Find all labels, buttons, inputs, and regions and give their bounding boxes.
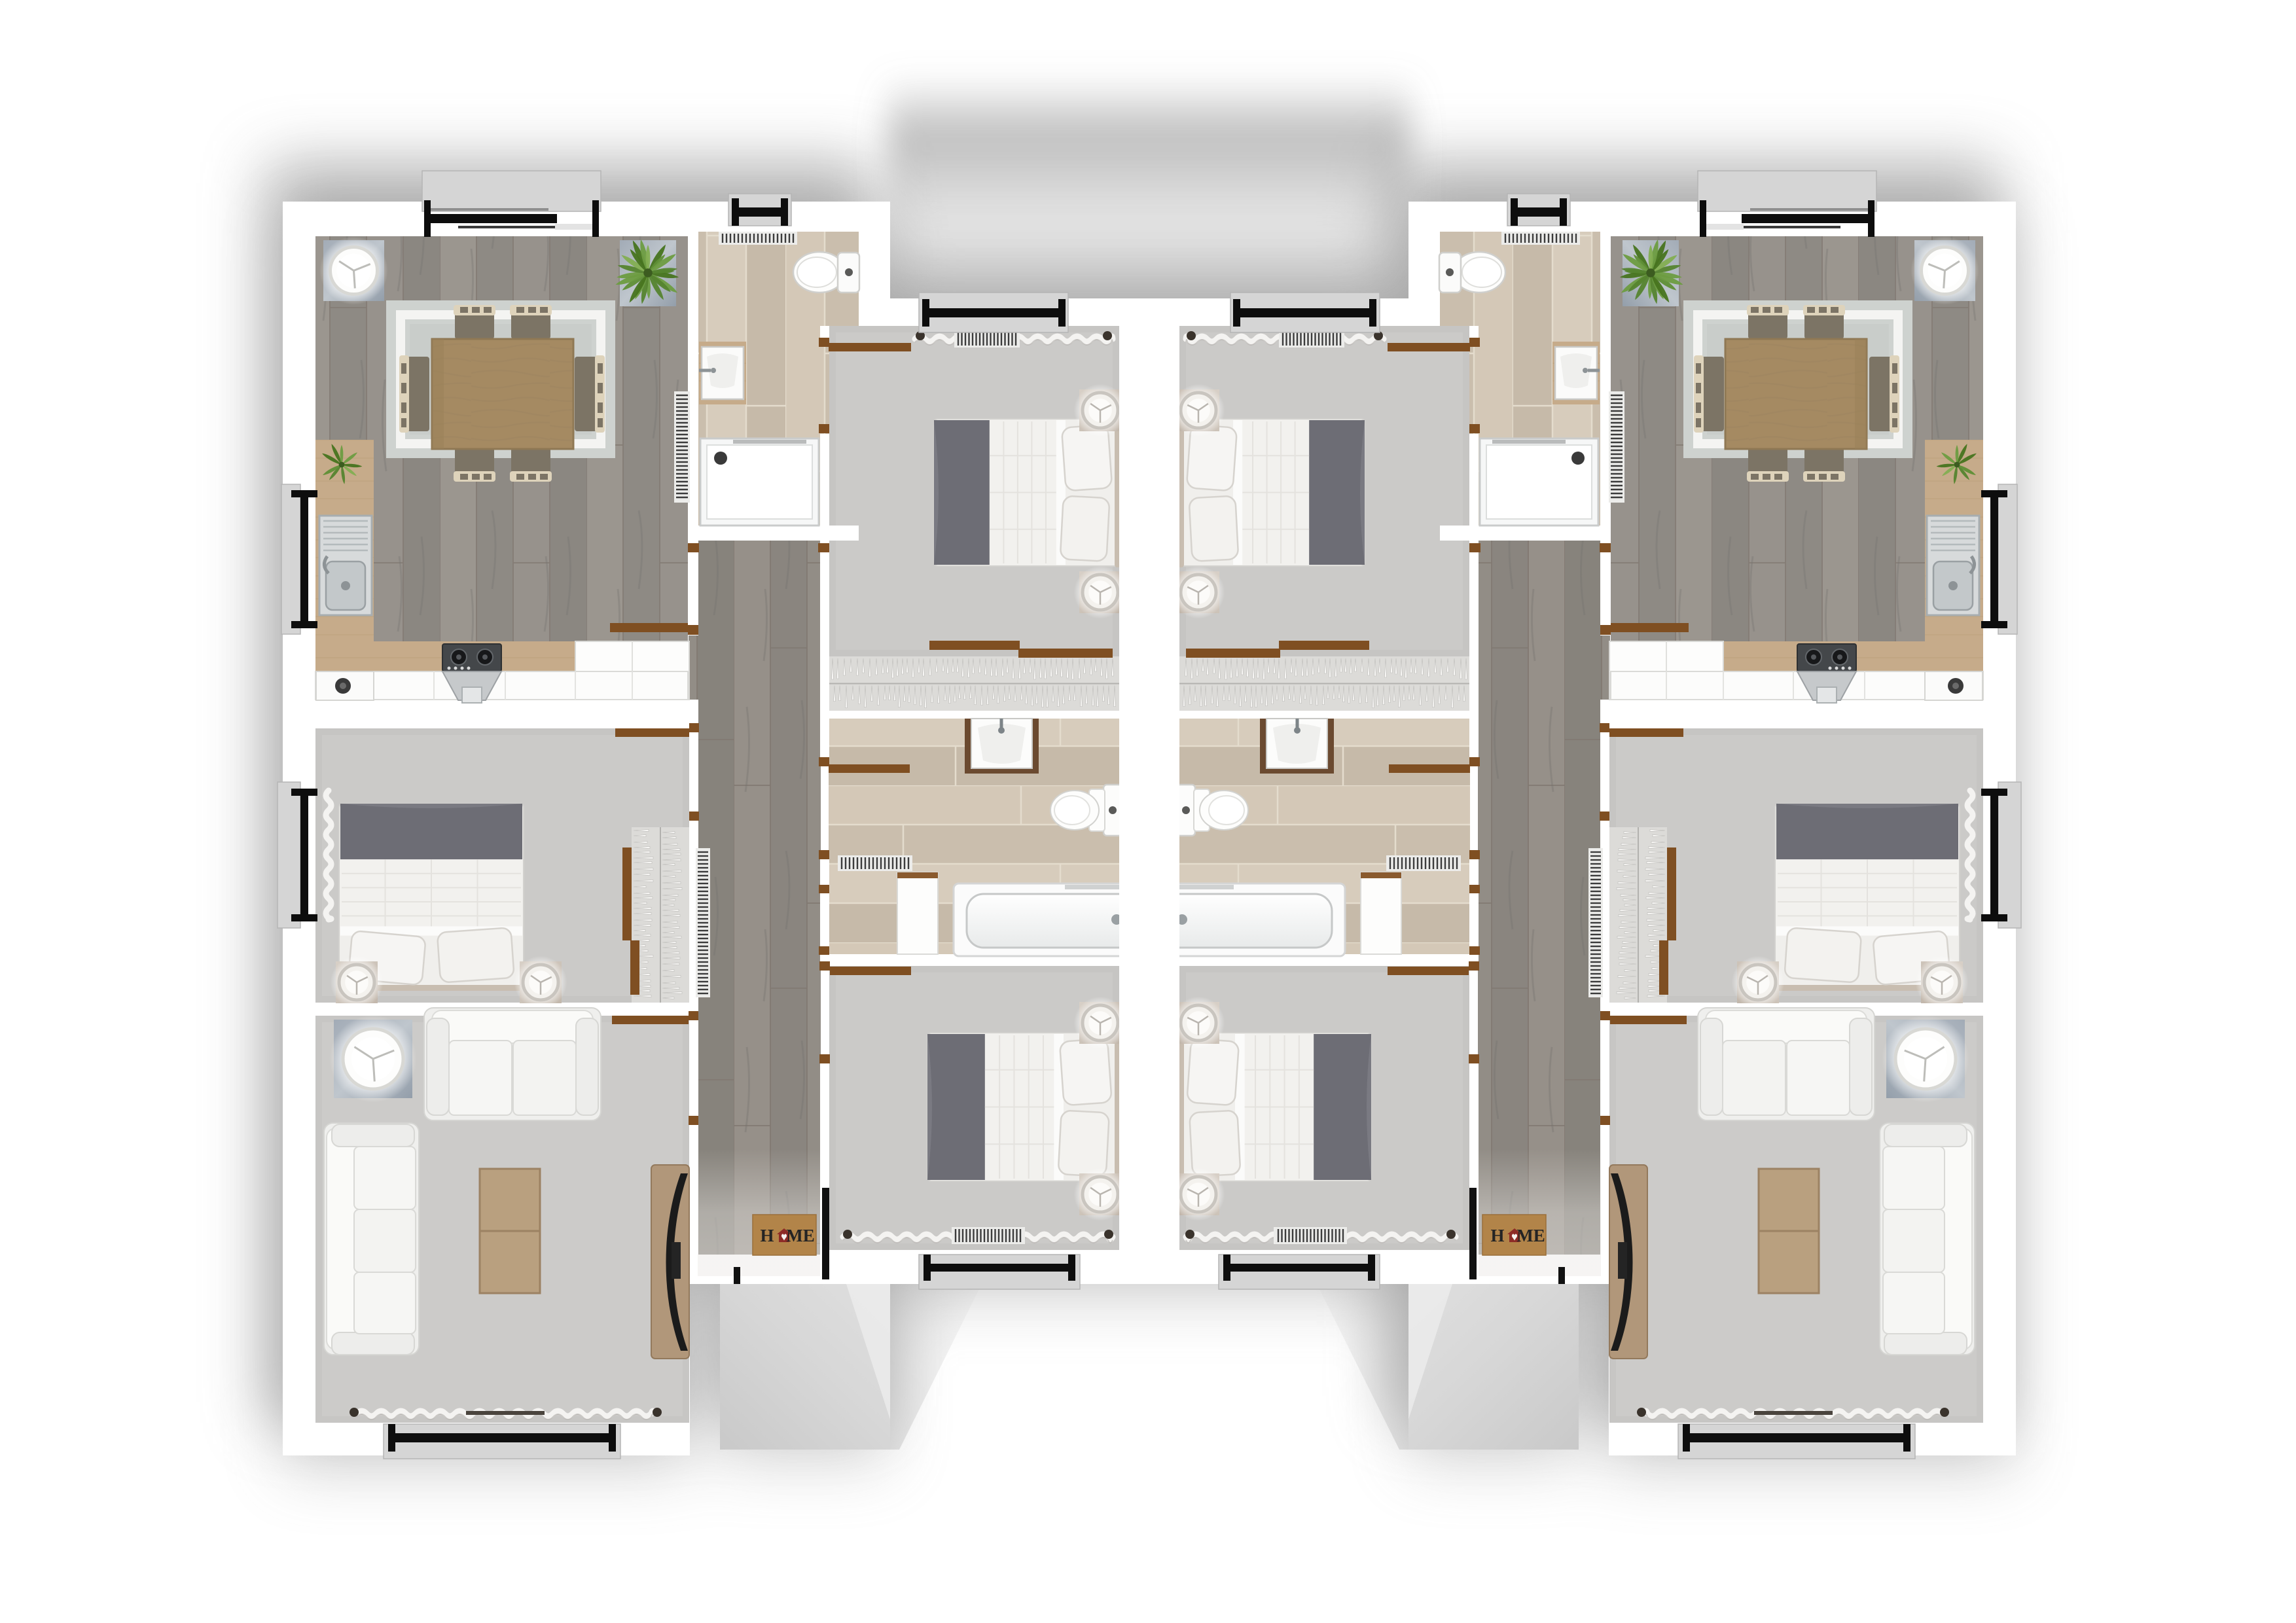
svg-text:H: H [760,1226,774,1245]
svg-text:ME: ME [1516,1226,1545,1245]
svg-text:H: H [1490,1226,1504,1245]
svg-text:ME: ME [786,1226,815,1245]
